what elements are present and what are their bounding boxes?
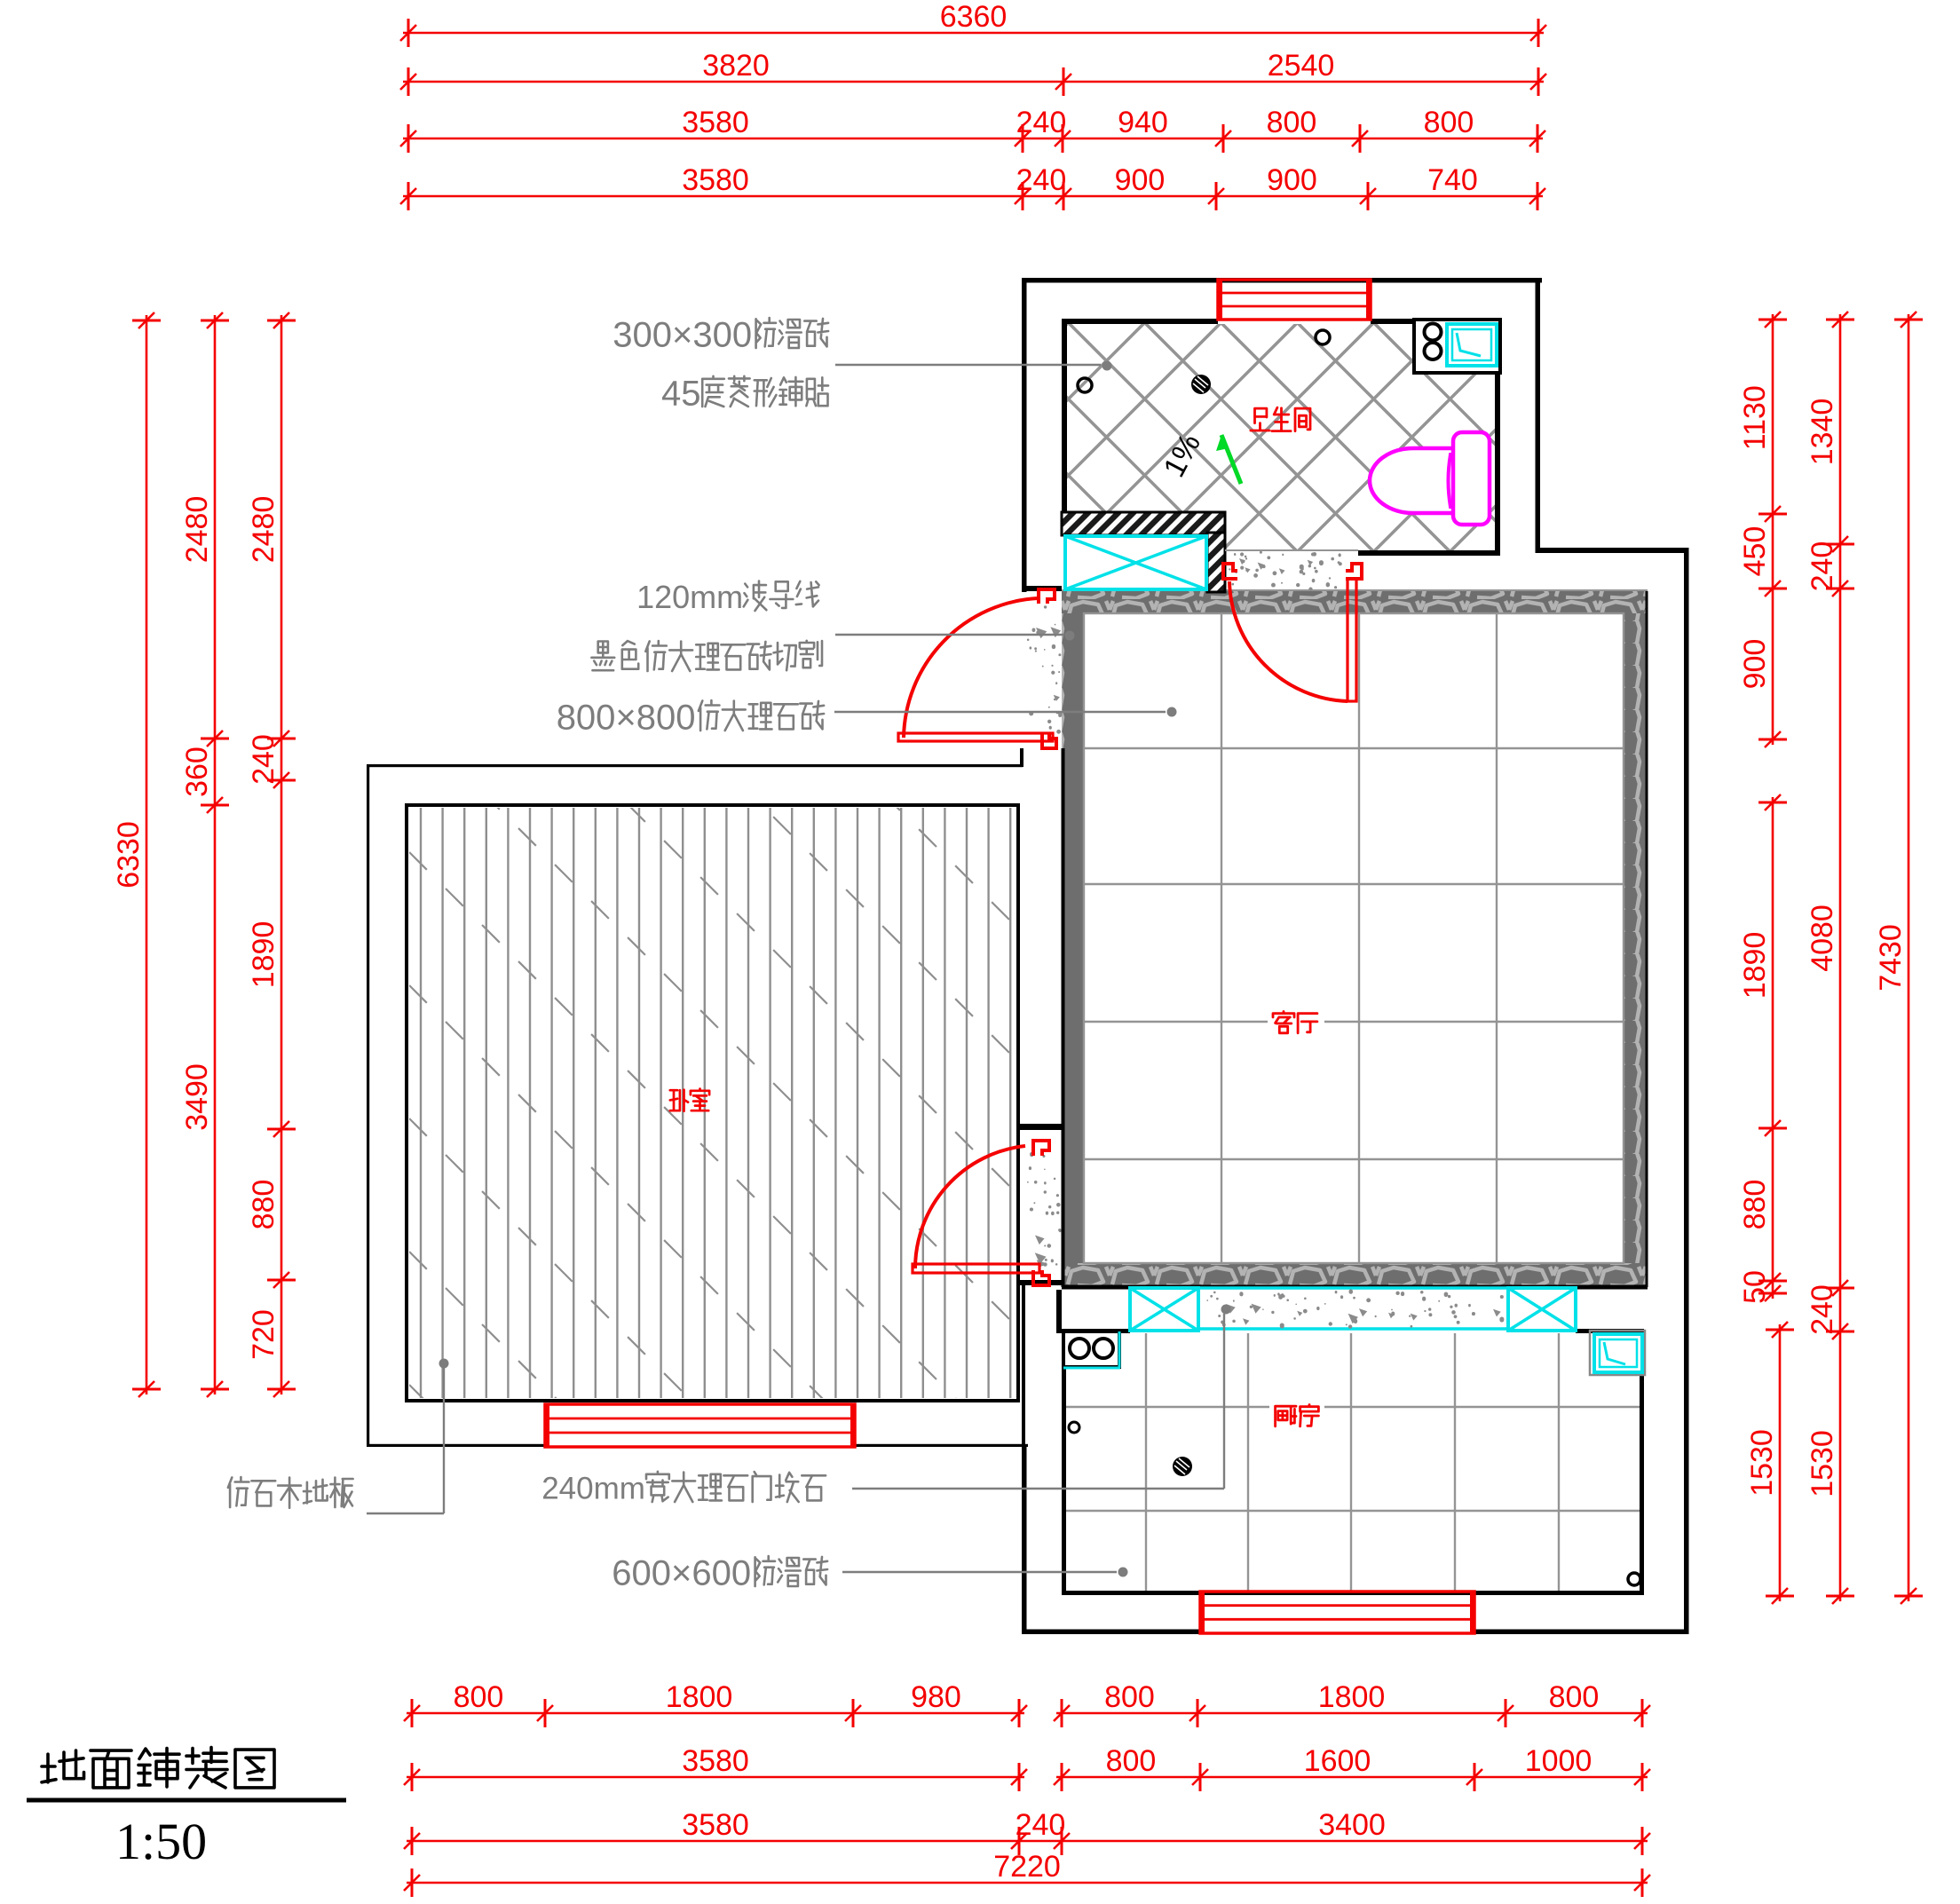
svg-text:240mm: 240mm bbox=[541, 1472, 645, 1506]
svg-text:300×300: 300×300 bbox=[612, 315, 752, 354]
svg-text:1:50: 1:50 bbox=[115, 1813, 207, 1870]
svg-text:1130: 1130 bbox=[1738, 385, 1772, 450]
svg-text:6330: 6330 bbox=[112, 821, 146, 889]
svg-text:1530: 1530 bbox=[1745, 1429, 1779, 1497]
svg-text:120mm: 120mm bbox=[636, 579, 743, 615]
svg-text:880: 880 bbox=[247, 1180, 281, 1230]
svg-text:3580: 3580 bbox=[682, 1744, 749, 1778]
svg-text:1890: 1890 bbox=[247, 921, 281, 989]
svg-text:940: 940 bbox=[1118, 106, 1168, 139]
svg-text:6360: 6360 bbox=[940, 0, 1008, 34]
svg-text:1600: 1600 bbox=[1304, 1744, 1371, 1778]
svg-text:240: 240 bbox=[1016, 163, 1067, 197]
svg-text:240: 240 bbox=[1806, 1284, 1839, 1335]
svg-text:240: 240 bbox=[1016, 106, 1067, 139]
svg-text:240: 240 bbox=[247, 734, 281, 785]
svg-text:4080: 4080 bbox=[1806, 905, 1839, 972]
svg-text:900: 900 bbox=[1115, 163, 1166, 197]
svg-text:800: 800 bbox=[1267, 106, 1317, 139]
svg-text:880: 880 bbox=[1738, 1180, 1772, 1230]
svg-text:720: 720 bbox=[247, 1309, 281, 1360]
svg-text:2480: 2480 bbox=[247, 496, 281, 564]
svg-text:800: 800 bbox=[1549, 1680, 1600, 1714]
svg-text:3580: 3580 bbox=[682, 1808, 749, 1842]
svg-text:3580: 3580 bbox=[682, 106, 749, 139]
svg-text:450: 450 bbox=[1738, 526, 1772, 577]
svg-text:7430: 7430 bbox=[1874, 924, 1908, 992]
svg-text:3820: 3820 bbox=[702, 49, 770, 83]
svg-text:2480: 2480 bbox=[180, 496, 214, 564]
svg-text:240: 240 bbox=[1806, 541, 1839, 592]
svg-text:45: 45 bbox=[661, 374, 701, 413]
svg-text:800: 800 bbox=[1106, 1744, 1157, 1778]
svg-text:800: 800 bbox=[1104, 1680, 1155, 1714]
svg-text:1000: 1000 bbox=[1525, 1744, 1592, 1778]
svg-text:800×800: 800×800 bbox=[557, 698, 696, 737]
svg-text:3400: 3400 bbox=[1318, 1808, 1386, 1842]
svg-text:1800: 1800 bbox=[1318, 1680, 1386, 1714]
svg-text:50: 50 bbox=[1738, 1270, 1772, 1304]
svg-text:2540: 2540 bbox=[1268, 49, 1335, 83]
svg-text:3580: 3580 bbox=[682, 163, 749, 197]
svg-text:7220: 7220 bbox=[993, 1850, 1061, 1884]
svg-text:600×600: 600×600 bbox=[612, 1553, 751, 1592]
svg-text:800: 800 bbox=[1424, 106, 1474, 139]
svg-text:240: 240 bbox=[1016, 1808, 1066, 1842]
svg-text:1800: 1800 bbox=[666, 1680, 733, 1714]
svg-text:740: 740 bbox=[1427, 163, 1478, 197]
svg-text:900: 900 bbox=[1267, 163, 1317, 197]
svg-text:980: 980 bbox=[911, 1680, 961, 1714]
svg-text:1340: 1340 bbox=[1806, 399, 1839, 466]
svg-text:800: 800 bbox=[454, 1680, 504, 1714]
svg-text:900: 900 bbox=[1738, 639, 1772, 690]
svg-text:360: 360 bbox=[180, 747, 214, 797]
svg-text:1890: 1890 bbox=[1738, 932, 1772, 999]
svg-text:1530: 1530 bbox=[1806, 1430, 1839, 1497]
svg-text:3490: 3490 bbox=[180, 1063, 214, 1131]
